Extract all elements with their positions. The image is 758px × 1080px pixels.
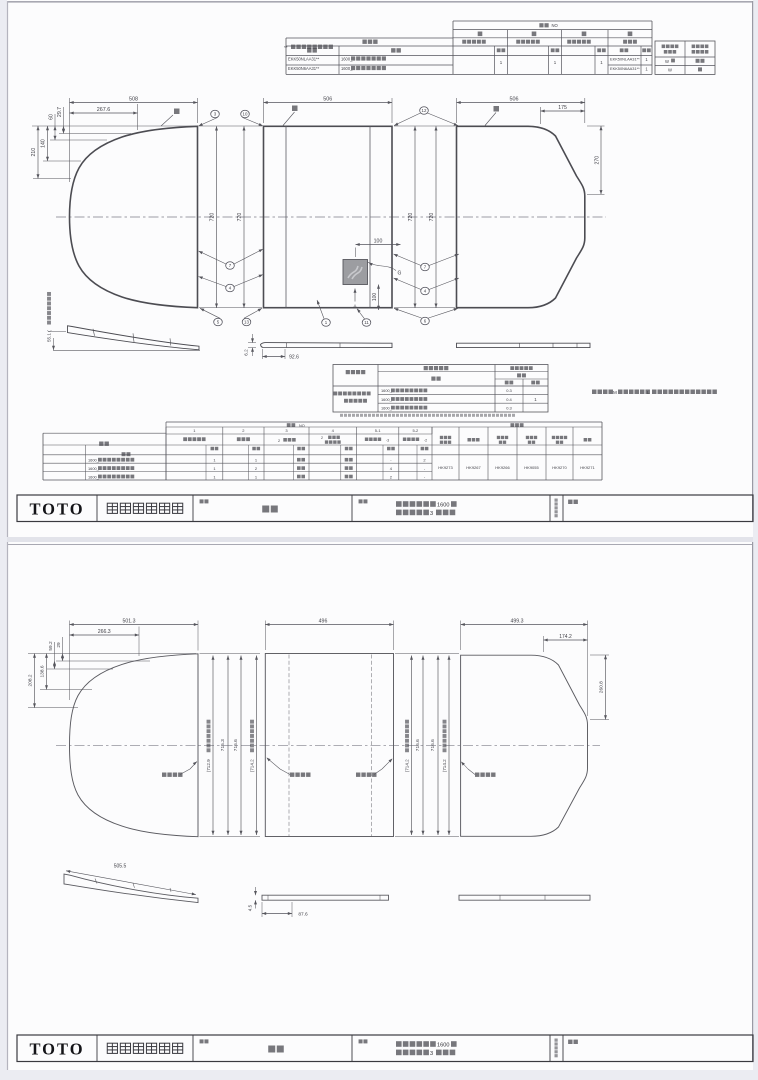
- svg-text:260.8: 260.8: [599, 681, 605, 693]
- svg-text:HK9271: HK9271: [580, 465, 595, 470]
- svg-text:L: L: [647, 390, 650, 395]
- svg-text:1600_: 1600_: [381, 405, 393, 410]
- svg-text:3: 3: [430, 1051, 433, 1057]
- svg-text:HK9270: HK9270: [552, 465, 567, 470]
- svg-text:6.2: 6.2: [244, 349, 249, 356]
- svg-text:HK9055: HK9055: [524, 465, 539, 470]
- svg-text:0.3: 0.3: [506, 388, 512, 393]
- svg-text:HK9273: HK9273: [438, 465, 453, 470]
- svg-text:5-1: 5-1: [375, 428, 382, 433]
- svg-text:1600_: 1600_: [381, 388, 393, 393]
- svg-text:TOTO: TOTO: [29, 500, 84, 519]
- svg-text:NO: NO: [552, 23, 559, 28]
- svg-text:5-2: 5-2: [413, 428, 420, 433]
- svg-text:267.6: 267.6: [97, 107, 111, 113]
- svg-text:11: 11: [364, 320, 369, 325]
- svg-text:501.3: 501.3: [123, 619, 136, 625]
- svg-text:0.4: 0.4: [506, 397, 512, 402]
- svg-text:TOTO: TOTO: [29, 1040, 84, 1059]
- svg-text:1600_: 1600_: [88, 458, 100, 463]
- svg-text:29: 29: [56, 642, 62, 648]
- svg-text:13: 13: [244, 320, 249, 325]
- svg-text:1600_: 1600_: [88, 466, 100, 471]
- svg-text:(714.2: (714.2: [250, 759, 255, 772]
- svg-text:-2: -2: [424, 438, 427, 442]
- svg-text:4.5: 4.5: [248, 904, 253, 911]
- svg-text:496: 496: [319, 619, 328, 625]
- svg-text:720: 720: [429, 213, 435, 222]
- svg-text:506: 506: [323, 97, 332, 103]
- svg-text:175: 175: [558, 105, 567, 111]
- svg-text:1600_: 1600_: [381, 397, 393, 402]
- svg-text:138.6: 138.6: [40, 665, 46, 677]
- svg-text:G: G: [398, 271, 402, 277]
- svg-text:716.6: 716.6: [430, 739, 436, 751]
- svg-text:270: 270: [594, 156, 600, 165]
- svg-text:HK9267: HK9267: [466, 465, 481, 470]
- svg-text:W: W: [668, 68, 672, 73]
- svg-text:NO: NO: [299, 424, 305, 428]
- svg-text:208.2: 208.2: [28, 674, 34, 686]
- svg-text:720: 720: [408, 213, 414, 222]
- svg-text:-3: -3: [386, 438, 389, 442]
- svg-text:720: 720: [210, 213, 216, 222]
- svg-text:M: M: [613, 390, 617, 395]
- svg-text:(714.2: (714.2: [405, 759, 410, 772]
- svg-text:10: 10: [243, 112, 248, 117]
- svg-text:140: 140: [41, 139, 47, 148]
- svg-text:HK9266: HK9266: [495, 465, 510, 470]
- svg-text:720: 720: [237, 213, 243, 222]
- svg-text:1600: 1600: [437, 502, 449, 508]
- svg-text:EKK50N6AA31**: EKK50N6AA31**: [610, 66, 640, 71]
- svg-text:12: 12: [422, 108, 427, 113]
- svg-text:499.3: 499.3: [511, 619, 524, 625]
- svg-text:0.3: 0.3: [506, 405, 512, 410]
- svg-text:100: 100: [374, 239, 383, 245]
- svg-text:716.6: 716.6: [415, 739, 421, 751]
- svg-text:174.2: 174.2: [559, 634, 572, 640]
- svg-text:508: 508: [129, 97, 138, 103]
- svg-text:506: 506: [510, 97, 519, 103]
- svg-text:715.3: 715.3: [220, 739, 226, 751]
- svg-text:W: W: [665, 59, 669, 64]
- svg-text:3: 3: [430, 511, 433, 517]
- svg-text:1600: 1600: [437, 1042, 449, 1048]
- svg-text:2: 2: [278, 439, 280, 443]
- svg-text:505.5: 505.5: [114, 864, 127, 870]
- svg-text:EKK50NLAA31**: EKK50NLAA31**: [610, 57, 640, 62]
- svg-text:60: 60: [49, 114, 55, 120]
- svg-text:266.3: 266.3: [98, 629, 111, 635]
- svg-text:(712.9: (712.9: [206, 759, 211, 772]
- svg-text:87.6: 87.6: [298, 912, 308, 918]
- svg-text:(714.2: (714.2: [442, 759, 447, 772]
- svg-text:59.2: 59.2: [48, 641, 54, 651]
- svg-text:29.7: 29.7: [57, 107, 63, 117]
- svg-text:EKK50N6AA31**: EKK50N6AA31**: [288, 66, 320, 71]
- svg-text:2: 2: [321, 436, 323, 440]
- svg-text:210: 210: [31, 148, 37, 157]
- svg-text:92.6: 92.6: [289, 355, 299, 361]
- svg-text:100: 100: [372, 293, 378, 302]
- svg-text:EKK50NLAA31**: EKK50NLAA31**: [288, 57, 320, 62]
- svg-text:1600_: 1600_: [88, 474, 100, 479]
- svg-text:716.6: 716.6: [233, 739, 239, 751]
